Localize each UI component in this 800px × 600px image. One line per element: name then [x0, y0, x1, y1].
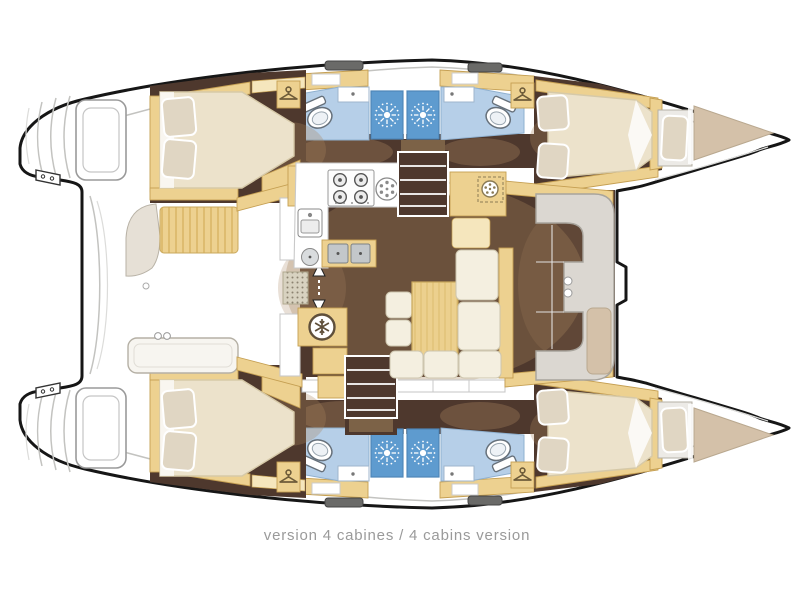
companionway-stairs-starboard [345, 356, 397, 432]
nav-seat [452, 218, 490, 248]
salon-table [412, 282, 458, 360]
cup-holder [564, 289, 572, 297]
cockpit-table [128, 338, 238, 373]
deck-hatch [468, 63, 502, 72]
pillow [661, 115, 688, 160]
forward-cabin [530, 76, 773, 195]
pillow [161, 139, 196, 180]
sofa-cushion [456, 250, 498, 300]
salon-aft-wall [280, 314, 300, 376]
pillow [537, 95, 569, 131]
catamaran-floorplan: version 4 cabines / 4 cabins version [0, 0, 800, 600]
stool [386, 320, 411, 346]
pillow [537, 143, 569, 179]
stool [386, 292, 412, 318]
seat-cushion [587, 308, 611, 374]
pillow [161, 97, 196, 138]
sofa-cushion [390, 351, 423, 378]
deck-hatch [325, 61, 363, 70]
sofa-cushion [424, 351, 458, 378]
sofa-cushion [459, 351, 501, 378]
cup-holder [564, 277, 572, 285]
cockpit-bench [160, 207, 238, 253]
sink-counter [444, 87, 474, 102]
companionway-stairs-port [398, 140, 448, 216]
bathroom [405, 87, 524, 140]
entry-grating [283, 272, 308, 304]
floorplan-svg: version 4 cabines / 4 cabins version [0, 0, 800, 600]
sofa-cushion [458, 302, 500, 350]
caption: version 4 cabines / 4 cabins version [264, 527, 530, 544]
